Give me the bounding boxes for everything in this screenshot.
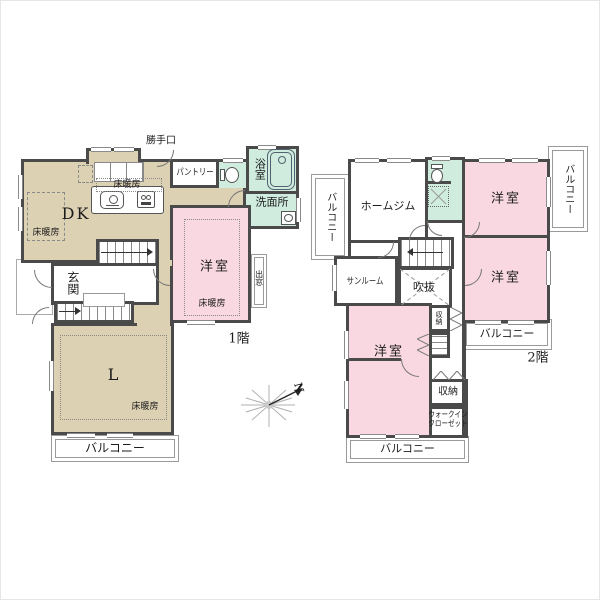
- window: [395, 434, 419, 439]
- toilet-icon-1f: [220, 167, 240, 183]
- window: [344, 331, 349, 359]
- window: [479, 158, 505, 163]
- window: [91, 147, 111, 152]
- room-dk-label: DK: [62, 205, 91, 223]
- balcony-2f-right: バルコニー: [548, 146, 588, 232]
- floor2-label: 2階: [527, 352, 548, 367]
- window: [114, 147, 134, 152]
- window: [432, 156, 450, 161]
- room-western-2f-bottom: [346, 303, 432, 438]
- room-western-2f-bottom-label: 洋室: [374, 346, 404, 361]
- window: [360, 434, 386, 439]
- window: [355, 158, 379, 163]
- window: [332, 265, 337, 291]
- stairs-arrowhead: [147, 248, 157, 256]
- bay-window-label: 出窓: [254, 270, 263, 286]
- room-western-1f-label: 洋室: [200, 261, 230, 276]
- window: [67, 433, 95, 438]
- wall-opening: [167, 188, 176, 205]
- room-western-2f-top-label: 洋室: [491, 193, 521, 208]
- window: [18, 207, 23, 231]
- window: [223, 158, 243, 163]
- toilet-icon-2f: [430, 164, 444, 184]
- back-door-label: 勝手口: [146, 135, 176, 147]
- wall-opening: [160, 260, 172, 266]
- window: [107, 433, 133, 438]
- stove-icon: [137, 191, 155, 208]
- floor-heating-label: 床暖房: [32, 228, 59, 238]
- balcony-2f-bottom: バルコニー: [346, 436, 469, 463]
- balcony-2f-bottom-label: バルコニー: [380, 443, 435, 456]
- room-bath-label: 浴室: [253, 158, 266, 180]
- floor1-label: 1階: [228, 333, 249, 348]
- room-living-label: L: [108, 366, 119, 384]
- folding-door-icon: [433, 371, 465, 380]
- shower-stall-icon: [428, 186, 449, 207]
- floor-heating-label: 床暖房: [131, 402, 158, 412]
- room-home-gym-label: ホームジム: [361, 201, 416, 214]
- floor-heating-label: 床暖房: [113, 180, 140, 190]
- folding-door-icon: [417, 334, 429, 356]
- balcony-1f-label: バルコニー: [85, 442, 145, 456]
- stairs-arrowhead: [75, 307, 85, 315]
- room-storage-label: 収納: [438, 386, 458, 398]
- bathtub-icon: [267, 149, 295, 190]
- window: [546, 177, 551, 207]
- balcony-2f-left-label: バルコニー: [324, 192, 336, 242]
- stairs-arrowhead: [403, 248, 413, 256]
- closet-small-2: [429, 332, 450, 358]
- balcony-2f-right-label: バルコニー: [562, 164, 574, 214]
- entrance-step: [83, 293, 125, 307]
- appliance-space: [78, 165, 93, 183]
- folding-door-icon: [450, 307, 462, 331]
- room-sunroom-label: サンルーム: [347, 277, 384, 287]
- room-washroom-label: 洗面所: [256, 197, 289, 210]
- room-pantry-label: パントリー: [176, 168, 213, 178]
- stairs-arrow: [101, 252, 147, 253]
- balcony-2f-left: バルコニー: [311, 174, 349, 260]
- balcony-2f-mid-label: バルコニー: [480, 328, 535, 341]
- window: [187, 320, 215, 325]
- stairs-arrow: [409, 252, 443, 253]
- balcony-1f: バルコニー: [51, 435, 179, 462]
- floorplan-canvas: バルコニー バルコニー バルコニー バルコニー バルコニー: [0, 0, 600, 600]
- wall-opening: [137, 323, 170, 329]
- window: [475, 320, 501, 325]
- window: [512, 158, 538, 163]
- window: [387, 158, 411, 163]
- window: [508, 320, 534, 325]
- sink-icon: [100, 191, 124, 209]
- wall-segment: [348, 241, 351, 259]
- room-western-2f-mid-label: 洋室: [491, 272, 521, 287]
- walk-in-closet-label: ウォークイン クローゼット: [428, 410, 467, 428]
- window: [49, 361, 54, 391]
- window: [18, 175, 23, 199]
- window: [296, 198, 301, 222]
- washer-icon: [281, 211, 296, 225]
- room-entrance-label: 玄関: [65, 271, 79, 295]
- floor-heating-label: 床暖房: [198, 299, 225, 309]
- window: [546, 251, 551, 285]
- window: [344, 381, 349, 409]
- closet-small-label: 収納: [435, 311, 443, 325]
- door-arc-toilet-2f: [427, 221, 442, 236]
- room-void-label: 吹抜: [413, 282, 435, 295]
